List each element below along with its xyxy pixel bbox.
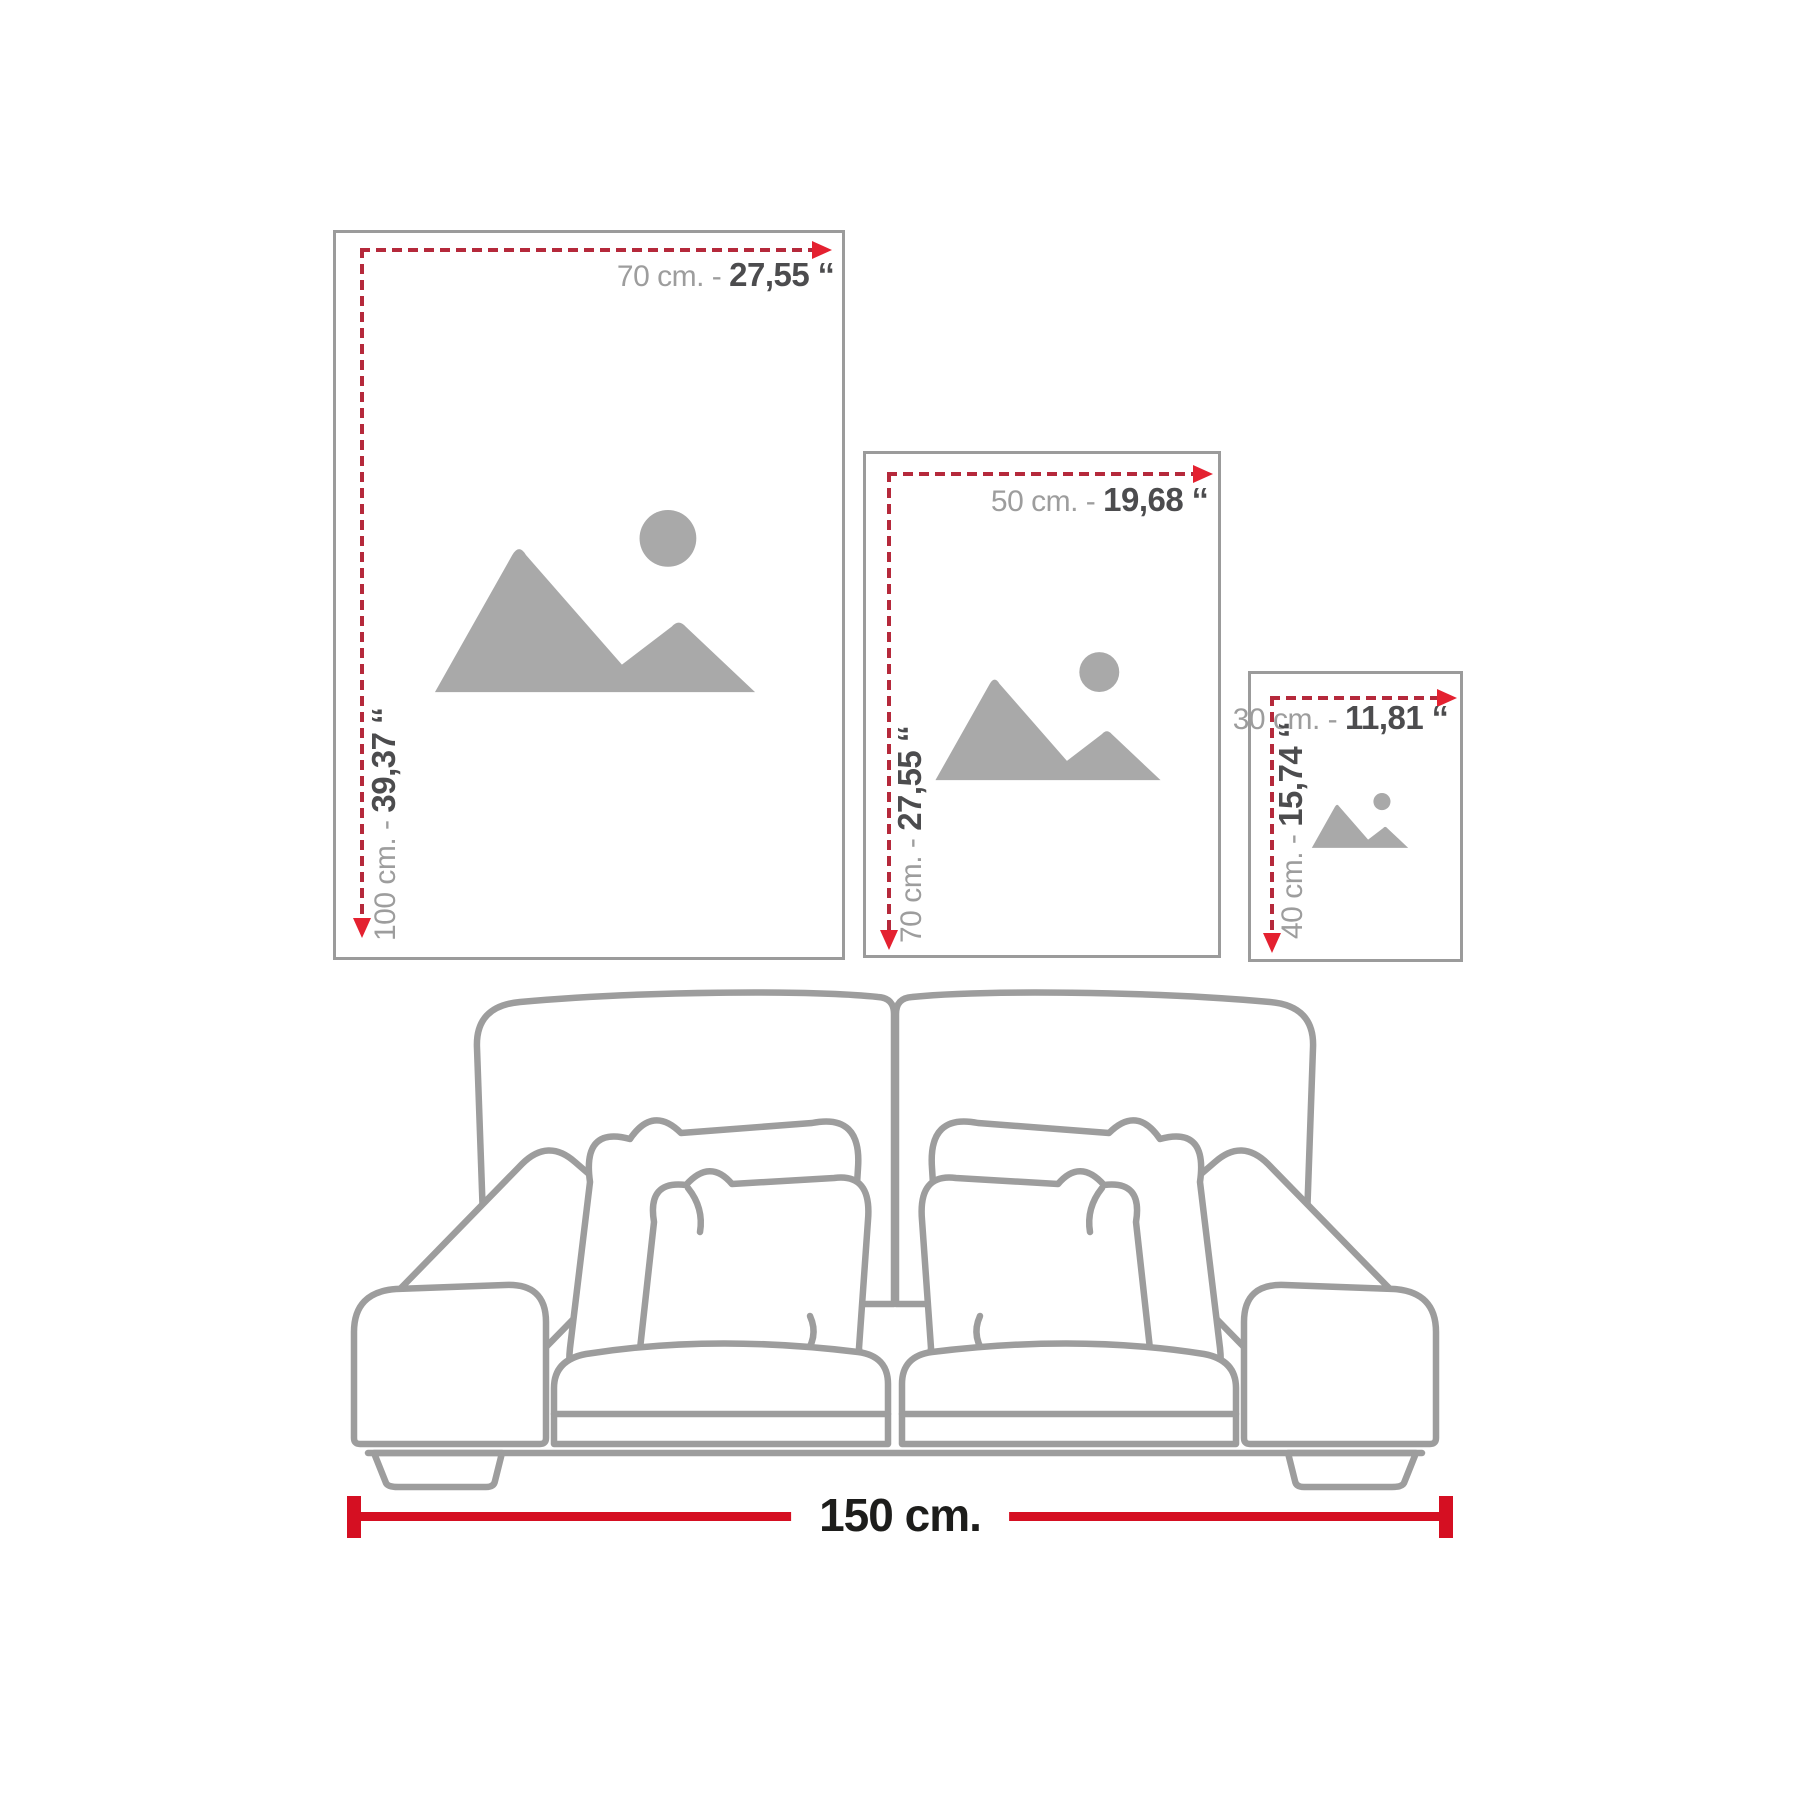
frame-small: 30 cm. - 11,81 ‘‘ 40 cm. - 15,74 ‘‘ (1248, 671, 1463, 962)
width-dimension-dashed-line (360, 248, 812, 252)
sofa-illustration (340, 986, 1450, 1496)
size-guide-canvas: 70 cm. - 27,55 ‘‘ 100 cm. - 39,37 ‘‘ 50 … (0, 0, 1800, 1800)
width-label: 70 cm. - 27,55 ‘‘ (617, 257, 834, 300)
sofa-armrest-right (1244, 1285, 1436, 1444)
width-label-cm: 70 cm. - (617, 260, 729, 293)
measure-cap-right (1439, 1496, 1453, 1538)
width-label-inches: 11,81 ‘‘ (1345, 699, 1448, 736)
width-label-inches: 27,55 ‘‘ (729, 256, 834, 293)
sofa-foot-left (374, 1453, 502, 1487)
image-placeholder-icon (1310, 793, 1410, 849)
height-label-cm: 40 cm. - (1276, 827, 1309, 939)
sofa-width-label: 150 cm. (791, 1492, 1009, 1538)
image-placeholder-icon (932, 652, 1164, 783)
width-label: 50 cm. - 19,68 ‘‘ (991, 482, 1208, 525)
height-label-inches: 27,55 ‘‘ (891, 726, 928, 831)
sofa-armrest-left (354, 1285, 546, 1444)
width-dimension-dashed-line (887, 472, 1193, 476)
frame-large: 70 cm. - 27,55 ‘‘ 100 cm. - 39,37 ‘‘ (333, 230, 845, 960)
sofa-seat-cushion-left (554, 1343, 888, 1444)
height-label-inches: 39,37 ‘‘ (365, 708, 402, 813)
height-dimension-dashed-line (360, 248, 364, 918)
measure-cap-left (347, 1496, 361, 1538)
image-placeholder-icon (430, 510, 760, 696)
height-label-cm: 70 cm. - (895, 831, 928, 943)
frame-medium: 50 cm. - 19,68 ‘‘ 70 cm. - 27,55 ‘‘ (863, 451, 1221, 958)
height-dimension-dashed-line (887, 472, 891, 930)
width-label-inches: 19,68 ‘‘ (1103, 481, 1208, 518)
height-label-inches: 15,74 ‘‘ (1272, 722, 1309, 827)
sofa-seat-cushion-right (902, 1343, 1236, 1444)
width-label: 30 cm. - 11,81 ‘‘ (1233, 700, 1448, 743)
height-label: 100 cm. - 39,37 ‘‘ (366, 708, 409, 941)
width-label-cm: 50 cm. - (991, 485, 1103, 518)
height-label: 70 cm. - 27,55 ‘‘ (892, 726, 935, 943)
height-label-cm: 100 cm. - (369, 813, 402, 941)
sofa-foot-right (1288, 1453, 1416, 1487)
